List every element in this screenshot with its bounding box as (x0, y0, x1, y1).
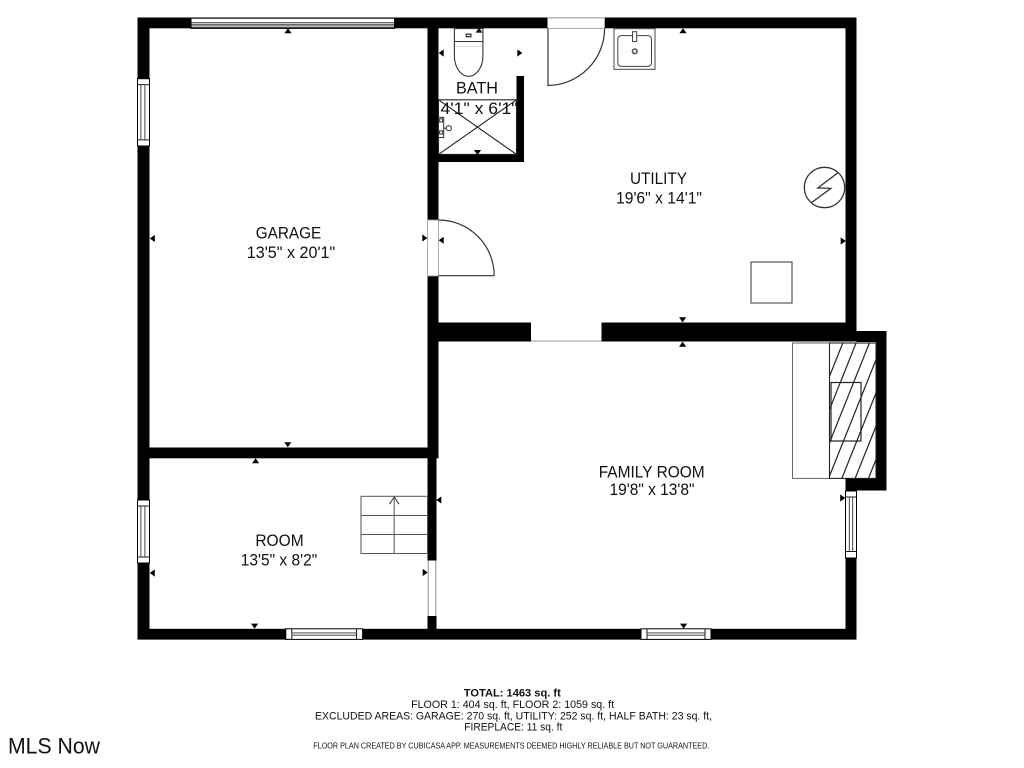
svg-text:FAMILY ROOM: FAMILY ROOM (599, 462, 705, 481)
svg-text:19'6" x 14'1": 19'6" x 14'1" (616, 188, 702, 207)
svg-text:13'5" x 8'2": 13'5" x 8'2" (241, 550, 317, 569)
svg-text:GARAGE: GARAGE (256, 224, 322, 243)
svg-text:MLS Now: MLS Now (8, 734, 100, 759)
svg-text:UTILITY: UTILITY (630, 169, 687, 188)
svg-text:ROOM: ROOM (255, 531, 303, 550)
svg-text:13'5" x 20'1": 13'5" x 20'1" (247, 243, 336, 262)
svg-text:19'8" x 13'8": 19'8" x 13'8" (610, 480, 695, 499)
svg-text:4'1" x 6'1": 4'1" x 6'1" (441, 99, 518, 118)
svg-text:FLOOR PLAN CREATED BY CUBICASA: FLOOR PLAN CREATED BY CUBICASA APP. MEAS… (313, 740, 709, 750)
svg-text:FLOOR 1: 404 sq. ft, FLOOR 2:: FLOOR 1: 404 sq. ft, FLOOR 2: 1059 sq. f… (411, 699, 615, 711)
svg-text:BATH: BATH (456, 79, 498, 98)
svg-text:FIREPLACE: 11 sq. ft: FIREPLACE: 11 sq. ft (464, 722, 563, 734)
svg-text:TOTAL: 1463 sq. ft: TOTAL: 1463 sq. ft (464, 688, 561, 700)
